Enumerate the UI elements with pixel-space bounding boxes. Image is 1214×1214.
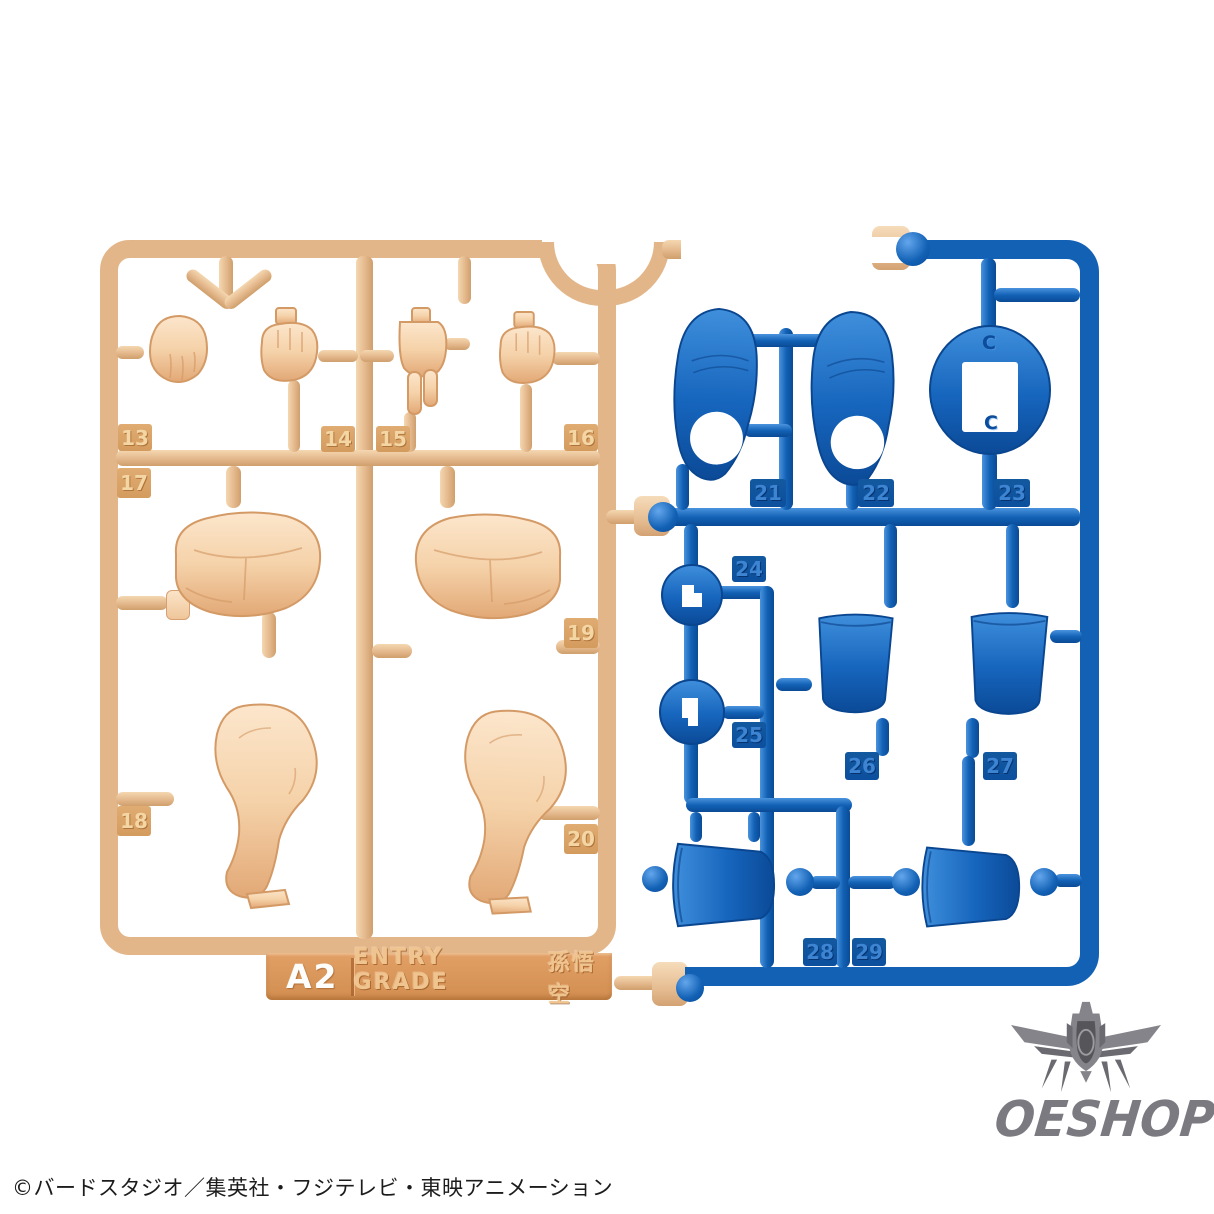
sprue-rail: [884, 524, 897, 608]
gundam-head-icon: [1008, 1000, 1164, 1100]
frame-gap: [681, 237, 908, 263]
part-tab-16: 16: [564, 424, 598, 451]
part-tab-14: 14: [321, 426, 355, 452]
part-pointing-hand: [390, 306, 452, 418]
sprue-rail: [116, 450, 600, 466]
part-torso: [400, 502, 590, 630]
sprue-rail: [1006, 524, 1019, 608]
sprue-rail: [520, 384, 532, 452]
part-open-hand: [140, 306, 216, 390]
mold-mark: C: [976, 412, 1006, 434]
sprue-rail: [776, 678, 812, 691]
part-fist-hand: [252, 308, 322, 386]
ball-joint: [1030, 868, 1058, 896]
sprue-rail: [360, 350, 394, 362]
sprue-rail: [1054, 874, 1082, 887]
part-tab-13: 13: [118, 424, 152, 451]
runner-code: A2: [286, 957, 339, 996]
ball-joint: [786, 868, 814, 896]
part-tab-26: 26: [845, 752, 879, 780]
part-tab-29: 29: [852, 938, 886, 966]
part-tab-19: 19: [564, 618, 598, 648]
part-shoe-sole: [657, 301, 775, 491]
gate-ball: [648, 502, 678, 532]
part-joint-disc: [660, 563, 724, 627]
part-tab-17: 17: [117, 468, 151, 498]
product-photo: 13 14 15 16 17 18 19 20 A2 ENTRY GRADE 孫…: [0, 0, 1214, 1214]
runner-label: A2 ENTRY GRADE 孫悟空: [266, 953, 612, 1000]
sprue-rail: [372, 644, 412, 658]
part-tab-18: 18: [117, 806, 151, 836]
sprue-rail: [848, 876, 896, 889]
part-tab-24: 24: [732, 556, 766, 582]
part-wrist-cuff: [808, 606, 902, 720]
part-leg: [423, 700, 584, 920]
gate-ball: [896, 232, 930, 266]
part-leg: [176, 698, 336, 910]
part-tab-20: 20: [564, 824, 598, 854]
watermark-brand: OESHOP: [992, 1095, 1214, 1144]
sprue-rail: [722, 706, 764, 719]
part-tab-27: 27: [983, 752, 1017, 780]
part-tab-22: 22: [858, 479, 894, 507]
sprue-rail: [458, 256, 471, 304]
sprue-rail: [116, 792, 174, 806]
part-torso: [146, 500, 336, 628]
part-boot-cuff: [912, 840, 1038, 934]
part-fist-hand: [490, 312, 560, 388]
mold-mark: C: [974, 332, 1004, 354]
sprue-rail: [966, 718, 979, 758]
sprue-rail: [810, 876, 840, 889]
part-boot-cuff: [664, 836, 792, 934]
sprue-rail: [686, 798, 852, 812]
part-tab-15: 15: [376, 426, 410, 452]
sprue-rail: [668, 508, 1080, 526]
sprue-rail: [318, 350, 358, 362]
part-tab-23: 23: [994, 479, 1030, 507]
sprue-rail: [962, 756, 975, 846]
part-wrist-cuff: [960, 606, 1057, 720]
sprue-rail: [994, 288, 1080, 302]
ball-joint: [642, 866, 668, 892]
gate-ball: [676, 974, 704, 1002]
sprue-rail: [876, 718, 889, 756]
part-shoe-sole: [795, 304, 913, 496]
part-tab-25: 25: [732, 722, 766, 748]
part-joint-disc: [658, 678, 726, 746]
part-tab-21: 21: [750, 479, 786, 507]
watermark: OESHOP .co.uk: [995, 1096, 1214, 1143]
series-name: ENTRY GRADE: [354, 945, 534, 1009]
character-name: 孫悟空: [548, 945, 612, 1009]
part-tab-28: 28: [803, 938, 837, 966]
ball-joint: [892, 868, 920, 896]
copyright-line: ©バードスタジオ／集英社・フジテレビ・東映アニメーション: [12, 1172, 613, 1202]
sprue-rail: [288, 380, 300, 452]
